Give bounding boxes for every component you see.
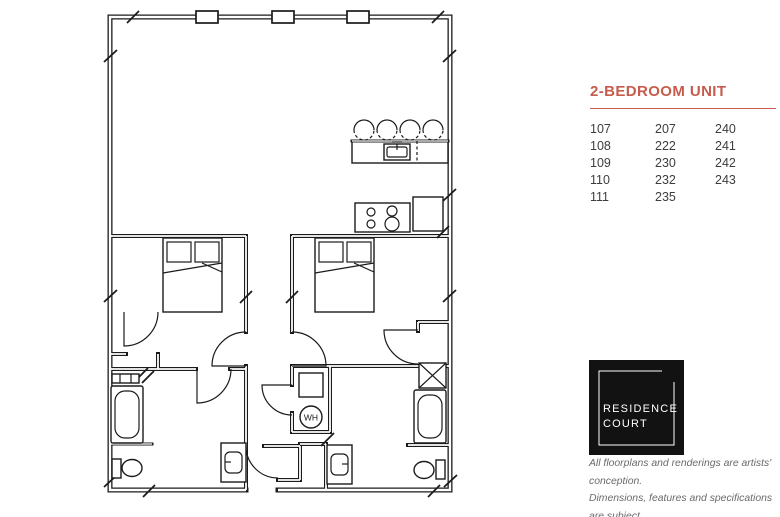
bathtub-1-icon (111, 386, 143, 443)
page-title: 2-BEDROOM UNIT (590, 83, 776, 100)
refrigerator-icon (413, 197, 443, 231)
logo-line-1: RESIDENCE (603, 402, 678, 417)
vanity-sink-1-icon (221, 443, 246, 482)
bed-1-icon (163, 238, 222, 312)
unit-number (715, 190, 776, 207)
unit-number: 240 (715, 122, 776, 139)
bathroom-1-fixtures (111, 374, 246, 482)
residence-court-logo: RESIDENCE COURT (589, 360, 684, 455)
chase-x-icon (419, 363, 446, 388)
water-heater-label: WH (304, 413, 318, 423)
logo-line-2: COURT (603, 417, 678, 432)
stove-icon (355, 203, 410, 232)
vanity-sink-2-icon (327, 445, 352, 484)
floorplan-drawing: WH (0, 0, 560, 517)
bed-2-icon (315, 238, 374, 312)
island-sink-icon (384, 142, 410, 160)
wall-break-ticks (104, 11, 457, 497)
unit-number: 230 (655, 156, 715, 173)
entry-door (246, 446, 278, 478)
unit-number: 222 (655, 139, 715, 156)
disclaimer-line-1: All floorplans and renderings are artist… (589, 455, 779, 490)
title-underline (590, 108, 776, 109)
exterior-walls (110, 17, 450, 490)
toilet-1-icon (112, 459, 142, 478)
unit-number: 110 (590, 173, 655, 190)
unit-number: 242 (715, 156, 776, 173)
floorplan-sheet: WH (0, 0, 780, 517)
info-panel: 2-BEDROOM UNIT 107 207 240 108 222 241 1… (590, 83, 776, 207)
unit-number: 232 (655, 173, 715, 190)
water-heater-icon: WH (300, 406, 322, 428)
utility-closet: WH (299, 373, 323, 428)
disclaimer-line-2: Dimensions, features and specifications … (589, 490, 779, 517)
bar-stool-icons (354, 120, 443, 140)
interior-walls (110, 236, 450, 490)
bathtub-2-icon (414, 390, 446, 443)
closet-1-door (124, 312, 158, 346)
bedroom-2-door (292, 332, 326, 366)
unit-number: 107 (590, 122, 655, 139)
utility-door (262, 385, 292, 415)
unit-number: 109 (590, 156, 655, 173)
disclaimer-text: All floorplans and renderings are artist… (589, 455, 779, 517)
unit-number: 108 (590, 139, 655, 156)
unit-number: 207 (655, 122, 715, 139)
unit-number: 111 (590, 190, 655, 207)
unit-number: 243 (715, 173, 776, 190)
unit-number: 241 (715, 139, 776, 156)
bathroom-2-fixtures (327, 363, 446, 484)
bathroom-1-door (197, 369, 231, 403)
logo-wordmark: RESIDENCE COURT (603, 402, 678, 432)
bedroom-1-door (212, 332, 246, 366)
closet-2-door (384, 330, 418, 364)
unit-number: 235 (655, 190, 715, 207)
toilet-2-icon (414, 460, 445, 479)
unit-number-list: 107 207 240 108 222 241 109 230 242 110 … (590, 122, 776, 207)
door-swings (124, 312, 418, 478)
